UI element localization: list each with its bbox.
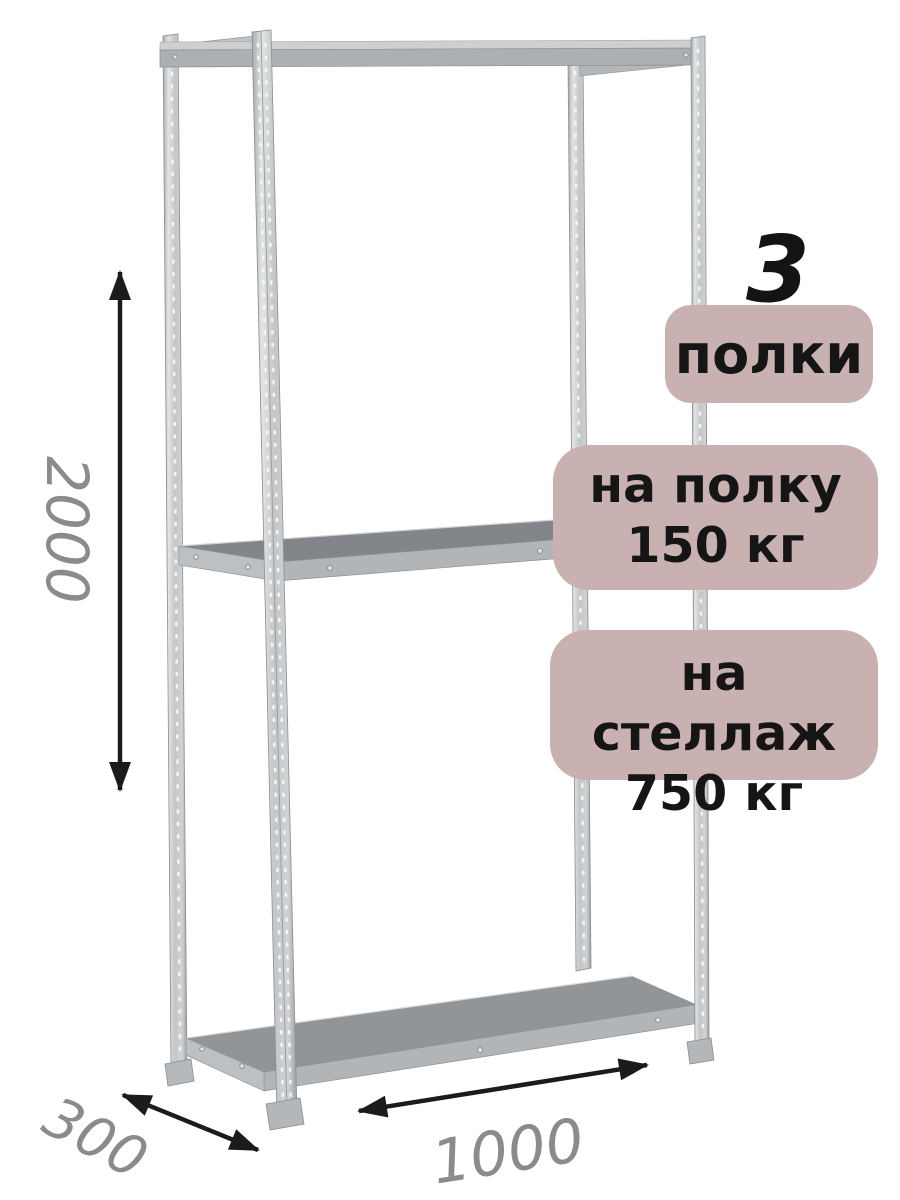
top-shelf [160, 35, 698, 76]
rack-load-badge: на стеллаж 750 кг [550, 630, 878, 780]
rack-load-line1: на стеллаж [550, 644, 878, 764]
post-foot [165, 1059, 194, 1086]
post-foot [266, 1098, 304, 1130]
shelf-load-badge: на полку 150 кг [553, 445, 878, 590]
shelf-load-line2: 150 кг [553, 516, 878, 576]
shelf-count-number: 3 [726, 224, 830, 316]
shelf-load-line1: на полку [553, 456, 878, 516]
rack-illustration [0, 0, 900, 1200]
height-dimension-label: 2000 [34, 370, 98, 690]
shelf-count-badge: полки [665, 305, 873, 403]
post-front-left [252, 30, 304, 1130]
shelf-count-badge-label: полки [675, 323, 863, 386]
rack-load-line2: 750 кг [550, 764, 878, 824]
bottom-shelf [186, 976, 700, 1091]
post-foot [687, 1038, 714, 1064]
product-image: 2000 300 1000 3 полки на полку 150 кг на… [0, 0, 900, 1200]
